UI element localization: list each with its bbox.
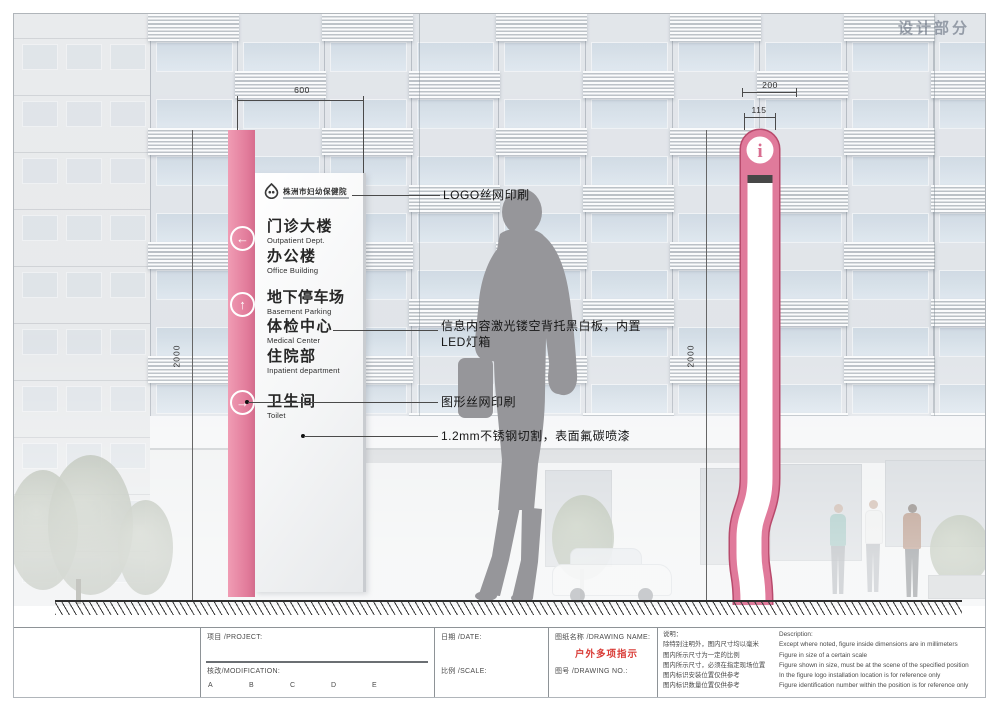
drawing-sheet: ← ↑ → 株洲市妇幼保健院 门诊大楼 Outpatient Dept. 办公楼…	[0, 0, 1000, 707]
sheet-border	[13, 13, 986, 698]
